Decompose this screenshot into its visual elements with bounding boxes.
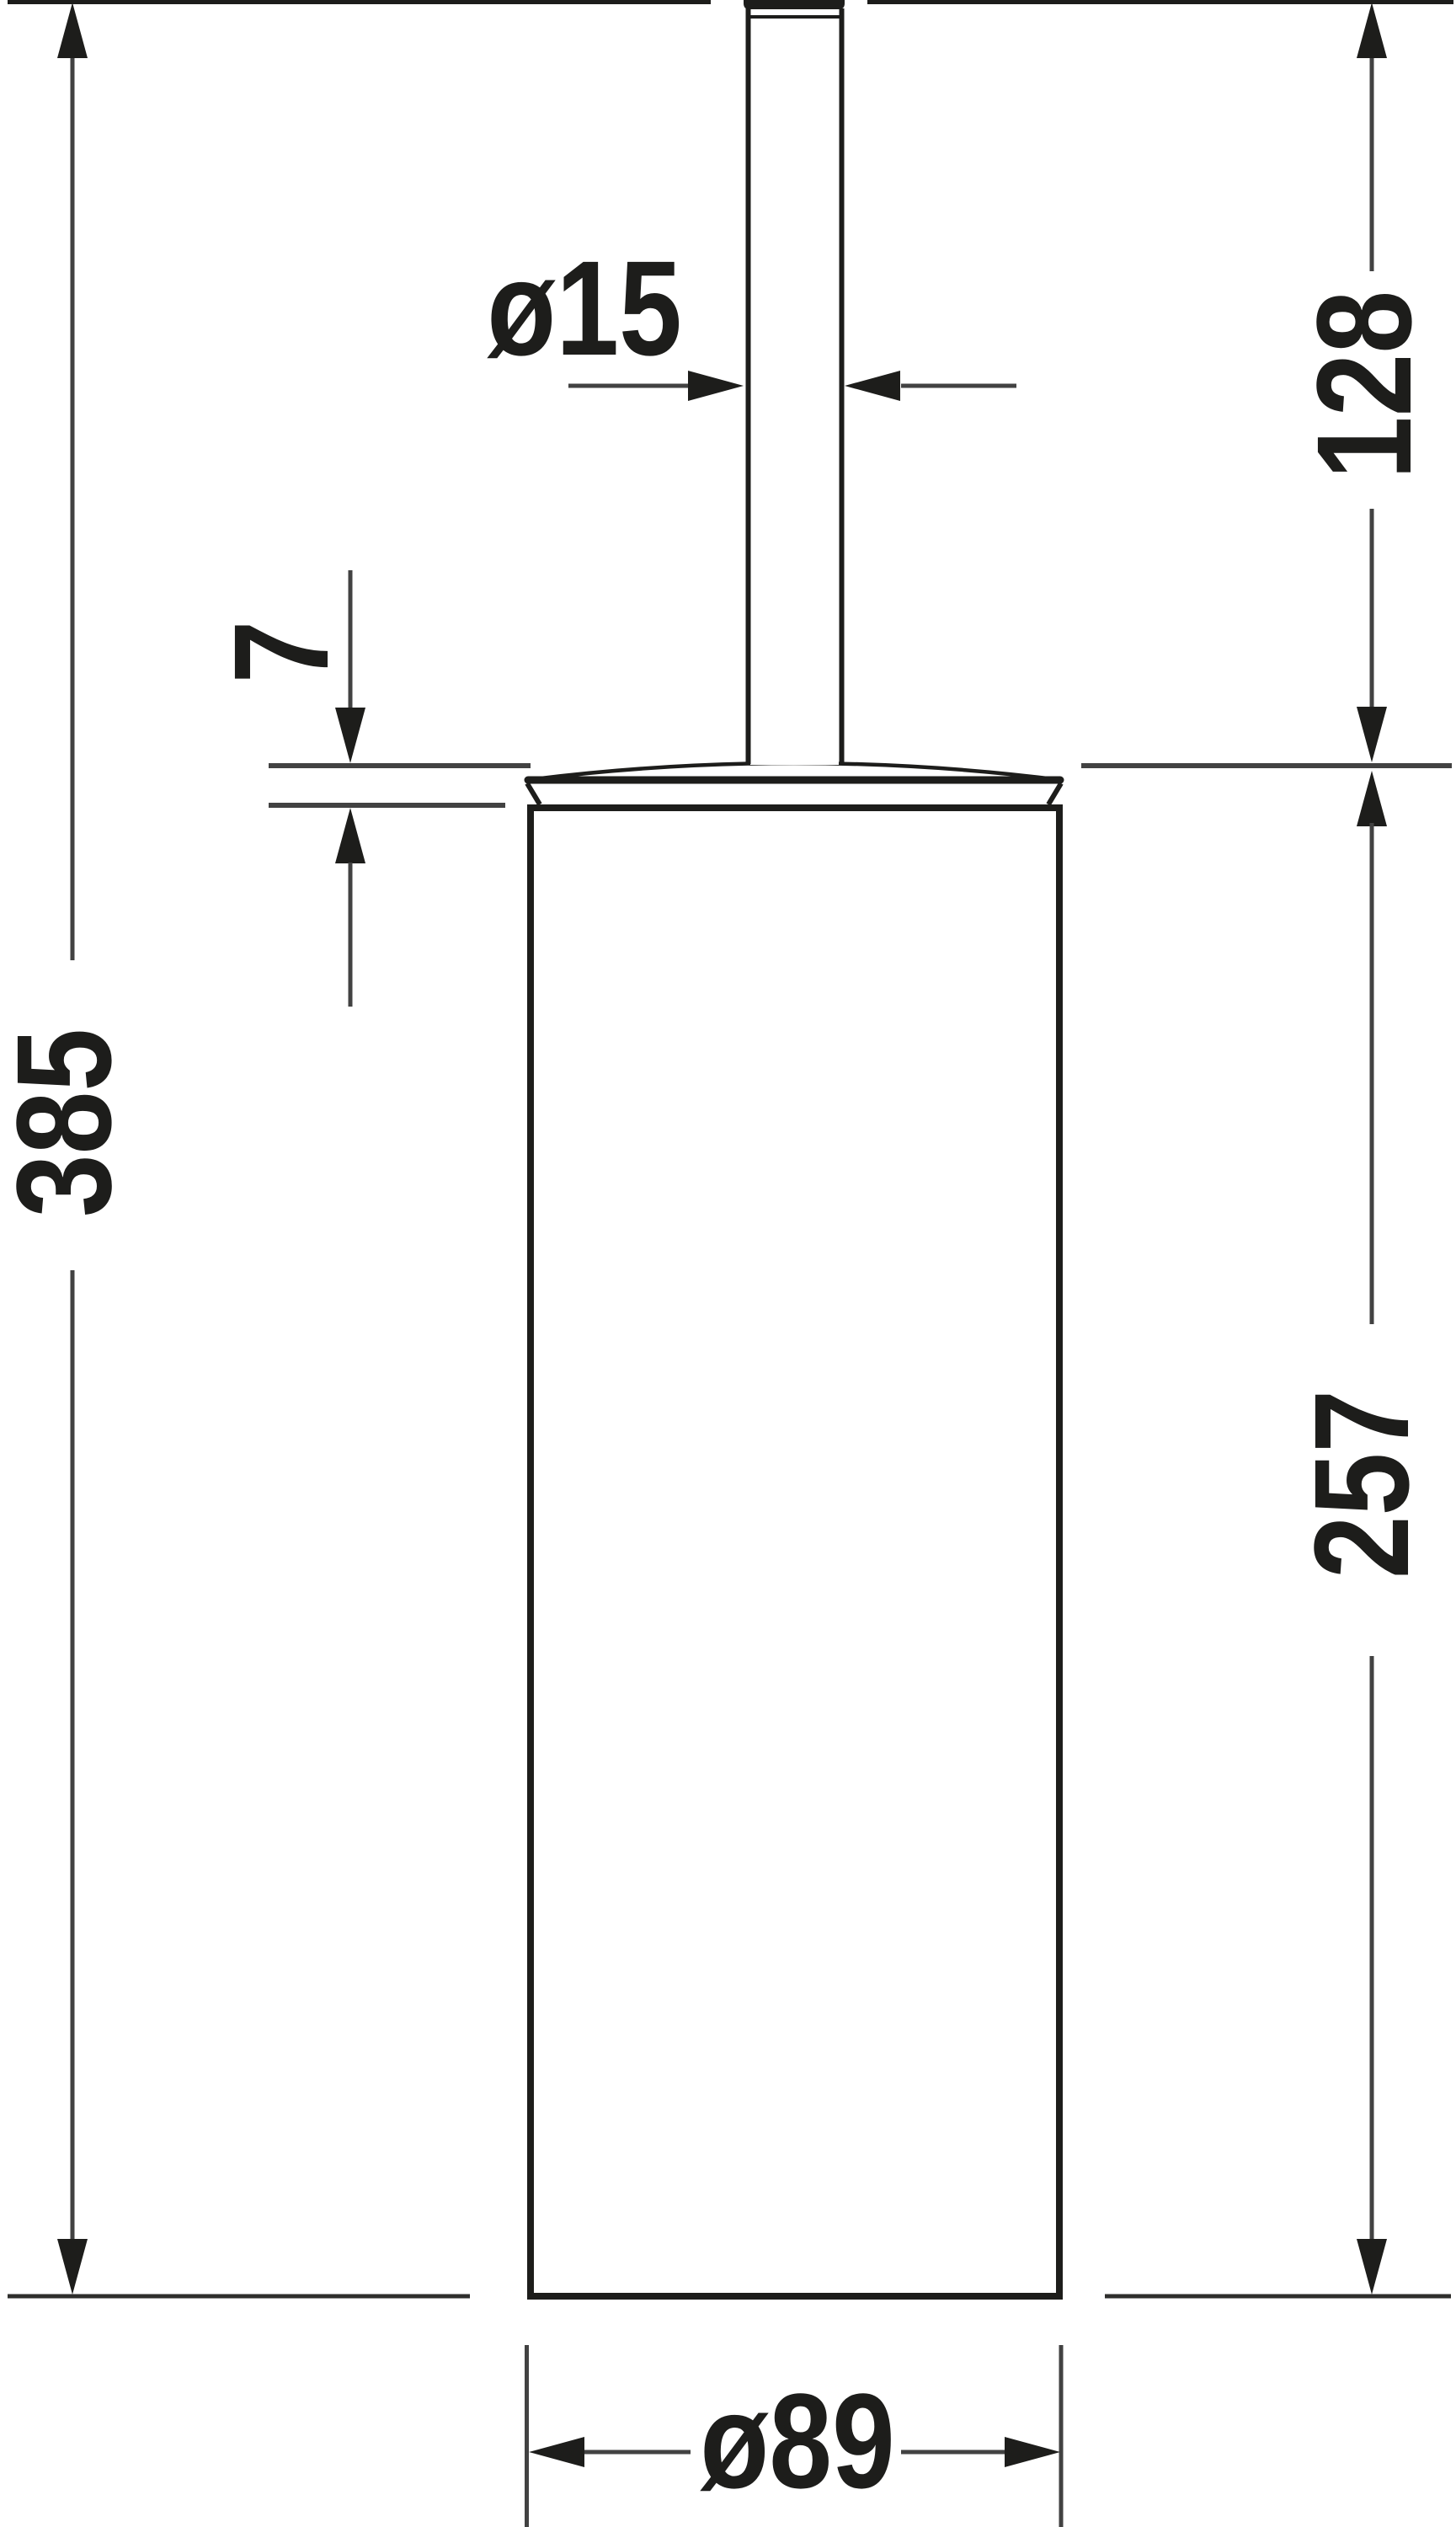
svg-text:128: 128 (1289, 291, 1440, 479)
svg-text:385: 385 (0, 1028, 140, 1217)
svg-text:7: 7 (206, 621, 357, 684)
svg-text:ø15: ø15 (487, 233, 682, 384)
svg-text:257: 257 (1287, 1390, 1437, 1579)
svg-text:ø89: ø89 (700, 2366, 895, 2517)
